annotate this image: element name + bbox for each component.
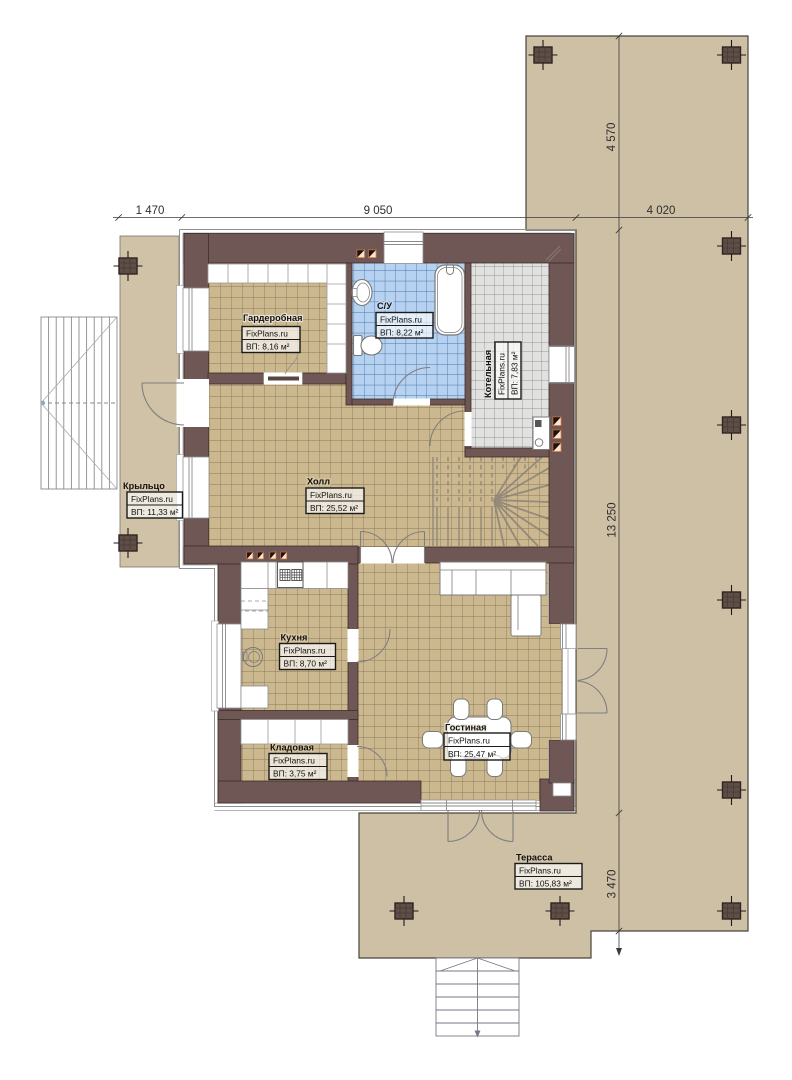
svg-text:3 470: 3 470 xyxy=(607,870,619,899)
svg-text:FixPlans.ru: FixPlans.ru xyxy=(273,756,315,766)
svg-text:FixPlans.ru: FixPlans.ru xyxy=(284,646,326,656)
svg-text:ВП: 7,83 м²: ВП: 7,83 м² xyxy=(510,351,520,395)
svg-text:FixPlans.ru: FixPlans.ru xyxy=(310,490,352,500)
svg-text:1 470: 1 470 xyxy=(136,205,165,217)
svg-text:ВП: 25,52 м²: ВП: 25,52 м² xyxy=(310,503,358,513)
svg-text:FixPlans.ru: FixPlans.ru xyxy=(519,866,561,876)
svg-text:FixPlans.ru: FixPlans.ru xyxy=(131,494,173,504)
svg-text:Гостиная: Гостиная xyxy=(445,723,487,733)
svg-text:ВП: 8,16 м²: ВП: 8,16 м² xyxy=(246,342,290,352)
svg-text:Терасса: Терасса xyxy=(516,853,553,863)
svg-text:ВП: 11,33 м²: ВП: 11,33 м² xyxy=(131,507,179,517)
svg-text:ВП: 105,83 м²: ВП: 105,83 м² xyxy=(519,879,572,889)
svg-text:FixPlans.ru: FixPlans.ru xyxy=(448,736,490,746)
svg-text:Кухня: Кухня xyxy=(281,633,308,643)
svg-text:FixPlans.ru: FixPlans.ru xyxy=(246,329,288,339)
svg-text:13 250: 13 250 xyxy=(607,502,619,537)
svg-text:Гардеробная: Гардеробная xyxy=(243,313,302,323)
svg-text:4 570: 4 570 xyxy=(606,123,618,152)
svg-text:FixPlans.ru: FixPlans.ru xyxy=(380,315,422,325)
svg-text:ВП: 8,70 м²: ВП: 8,70 м² xyxy=(284,659,328,669)
svg-text:ВП: 25,47 м²: ВП: 25,47 м² xyxy=(448,749,496,759)
svg-text:ВП: 3,75 м²: ВП: 3,75 м² xyxy=(273,769,317,779)
svg-text:Холл: Холл xyxy=(307,477,330,487)
svg-text:Котельная: Котельная xyxy=(483,350,493,398)
svg-text:4 020: 4 020 xyxy=(647,205,676,217)
svg-text:9 050: 9 050 xyxy=(364,205,393,217)
svg-text:Крыльцо: Крыльцо xyxy=(123,481,165,491)
svg-text:С/У: С/У xyxy=(377,301,392,311)
svg-text:Кладовая: Кладовая xyxy=(270,743,314,753)
svg-text:FixPlans.ru: FixPlans.ru xyxy=(497,353,507,395)
svg-text:ВП: 8,22 м²: ВП: 8,22 м² xyxy=(380,328,424,338)
